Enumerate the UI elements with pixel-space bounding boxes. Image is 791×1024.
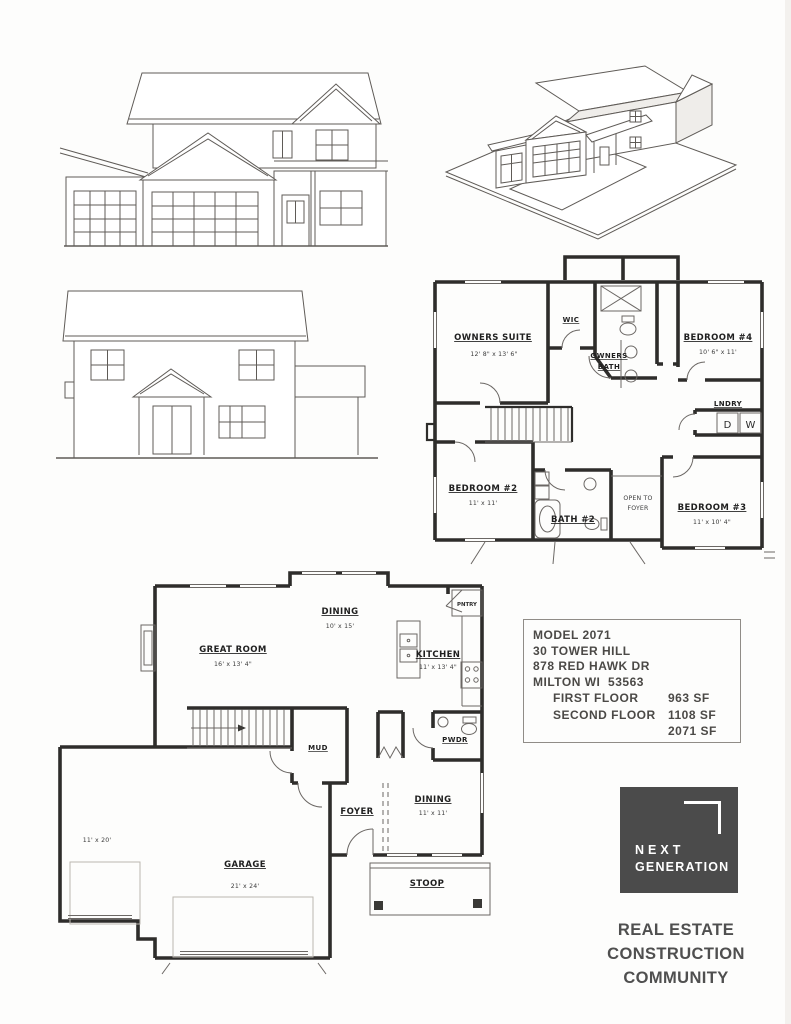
front-elevation-drawing (58, 60, 393, 260)
rear-side-porch (295, 366, 365, 455)
garage-bay-dims: 11' x 20' (83, 837, 112, 844)
roof-below-lines (471, 542, 775, 564)
tagline-line-2: CONSTRUCTION (555, 942, 791, 966)
bedroom2-label: BEDROOM #2 (449, 484, 518, 494)
powder-fixtures (438, 717, 477, 735)
owners-suite-dims: 12' 8" x 13' 6" (470, 351, 517, 358)
owners-suite-label: OWNERS SUITE (454, 333, 532, 343)
total-row: 2071 SF (533, 723, 740, 740)
stoop-label: STOOP (410, 879, 445, 889)
bedroom2-dims: 11' x 11' (469, 500, 498, 507)
first-floor-plan: GREAT ROOM 16' x 13' 4" DINING 10' x 15'… (40, 568, 505, 978)
dining-dims: 10' x 15' (326, 623, 355, 630)
plan-info-box: MODEL 2071 30 TOWER HILL 878 RED HAWK DR… (523, 619, 741, 743)
rear-elevation-drawing (52, 280, 387, 472)
dining-label: DINING (322, 607, 359, 617)
total-sf: 2071 SF (668, 723, 740, 740)
first-floor-sf: 963 SF (668, 690, 740, 707)
fireplace (141, 625, 155, 671)
lower-right-window (320, 191, 362, 225)
powder-label: PWDR (442, 736, 468, 744)
tagline-line-3: COMMUNITY (555, 966, 791, 990)
door-swings (270, 728, 433, 855)
lot-line: 30 TOWER HILL (533, 644, 740, 660)
garage-dims: 21' x 24' (231, 883, 260, 890)
street-line: 878 RED HAWK DR (533, 659, 740, 675)
upper-window-small (273, 131, 292, 158)
owners-bath-label-2: BATH (598, 363, 620, 371)
logo-line-2: GENERATION (635, 860, 729, 874)
logo-line-1: NEXT (635, 843, 684, 857)
builder-tagline: REAL ESTATE CONSTRUCTION COMMUNITY (555, 918, 791, 990)
bedroom4-dims: 10' 6" x 11' (699, 349, 737, 356)
model-number: MODEL 2071 (533, 628, 740, 644)
dryer-label: D (724, 420, 732, 431)
first-floor-label: FIRST FLOOR (533, 690, 668, 707)
bedroom3-label: BEDROOM #3 (678, 503, 747, 513)
mud-label: MUD (308, 744, 328, 752)
laundry-label: LNDRY (714, 400, 743, 408)
pantry-label: PNTRY (457, 602, 477, 608)
open-to-foyer-2: FOYER (627, 505, 649, 512)
bath2-label: BATH #2 (551, 515, 595, 525)
total-label (533, 723, 668, 740)
kitchen-label: KITCHEN (416, 650, 461, 660)
wic-label: WIC (563, 316, 580, 324)
second-floor-plan: OWNERS SUITE 12' 8" x 13' 6" WIC OWNERS … (425, 252, 775, 570)
second-floor-sf: 1108 SF (668, 707, 740, 724)
builder-logo: NEXT GENERATION (620, 787, 738, 893)
front-dining-dims: 11' x 11' (419, 810, 448, 817)
isometric-view-drawing (440, 55, 740, 240)
city-line: MILTON WI 53563 (533, 675, 740, 691)
second-floor-label: SECOND FLOOR (533, 707, 668, 724)
upper-window-gable (316, 130, 348, 160)
washer-label: W (746, 420, 756, 431)
bath2-fixtures (535, 472, 607, 538)
second-floor-row: SECOND FLOOR 1108 SF (533, 707, 740, 724)
stairs (485, 407, 572, 442)
great-room-dims: 16' x 13' 4" (214, 661, 252, 668)
great-room-label: GREAT ROOM (199, 645, 266, 655)
owners-bath-label-1: OWNERS (590, 352, 627, 360)
scan-edge (785, 0, 791, 1024)
stoop (370, 863, 490, 915)
corner-bracket-icon (684, 801, 721, 834)
open-to-foyer-1: OPEN TO (623, 495, 652, 502)
kitchen-dims: 11' x 13' 4" (419, 664, 457, 671)
garage-details (68, 862, 326, 974)
foyer-label: FOYER (340, 807, 373, 817)
tagline-line-1: REAL ESTATE (555, 918, 791, 942)
bedroom4-label: BEDROOM #4 (684, 333, 753, 343)
front-dining-label: DINING (415, 795, 452, 805)
stairs (187, 710, 292, 748)
first-floor-row: FIRST FLOOR 963 SF (533, 690, 740, 707)
plan-sheet: OWNERS SUITE 12' 8" x 13' 6" WIC OWNERS … (0, 0, 791, 1024)
garage-label: GARAGE (224, 860, 266, 870)
bedroom3-dims: 11' x 10' 4" (693, 519, 731, 526)
